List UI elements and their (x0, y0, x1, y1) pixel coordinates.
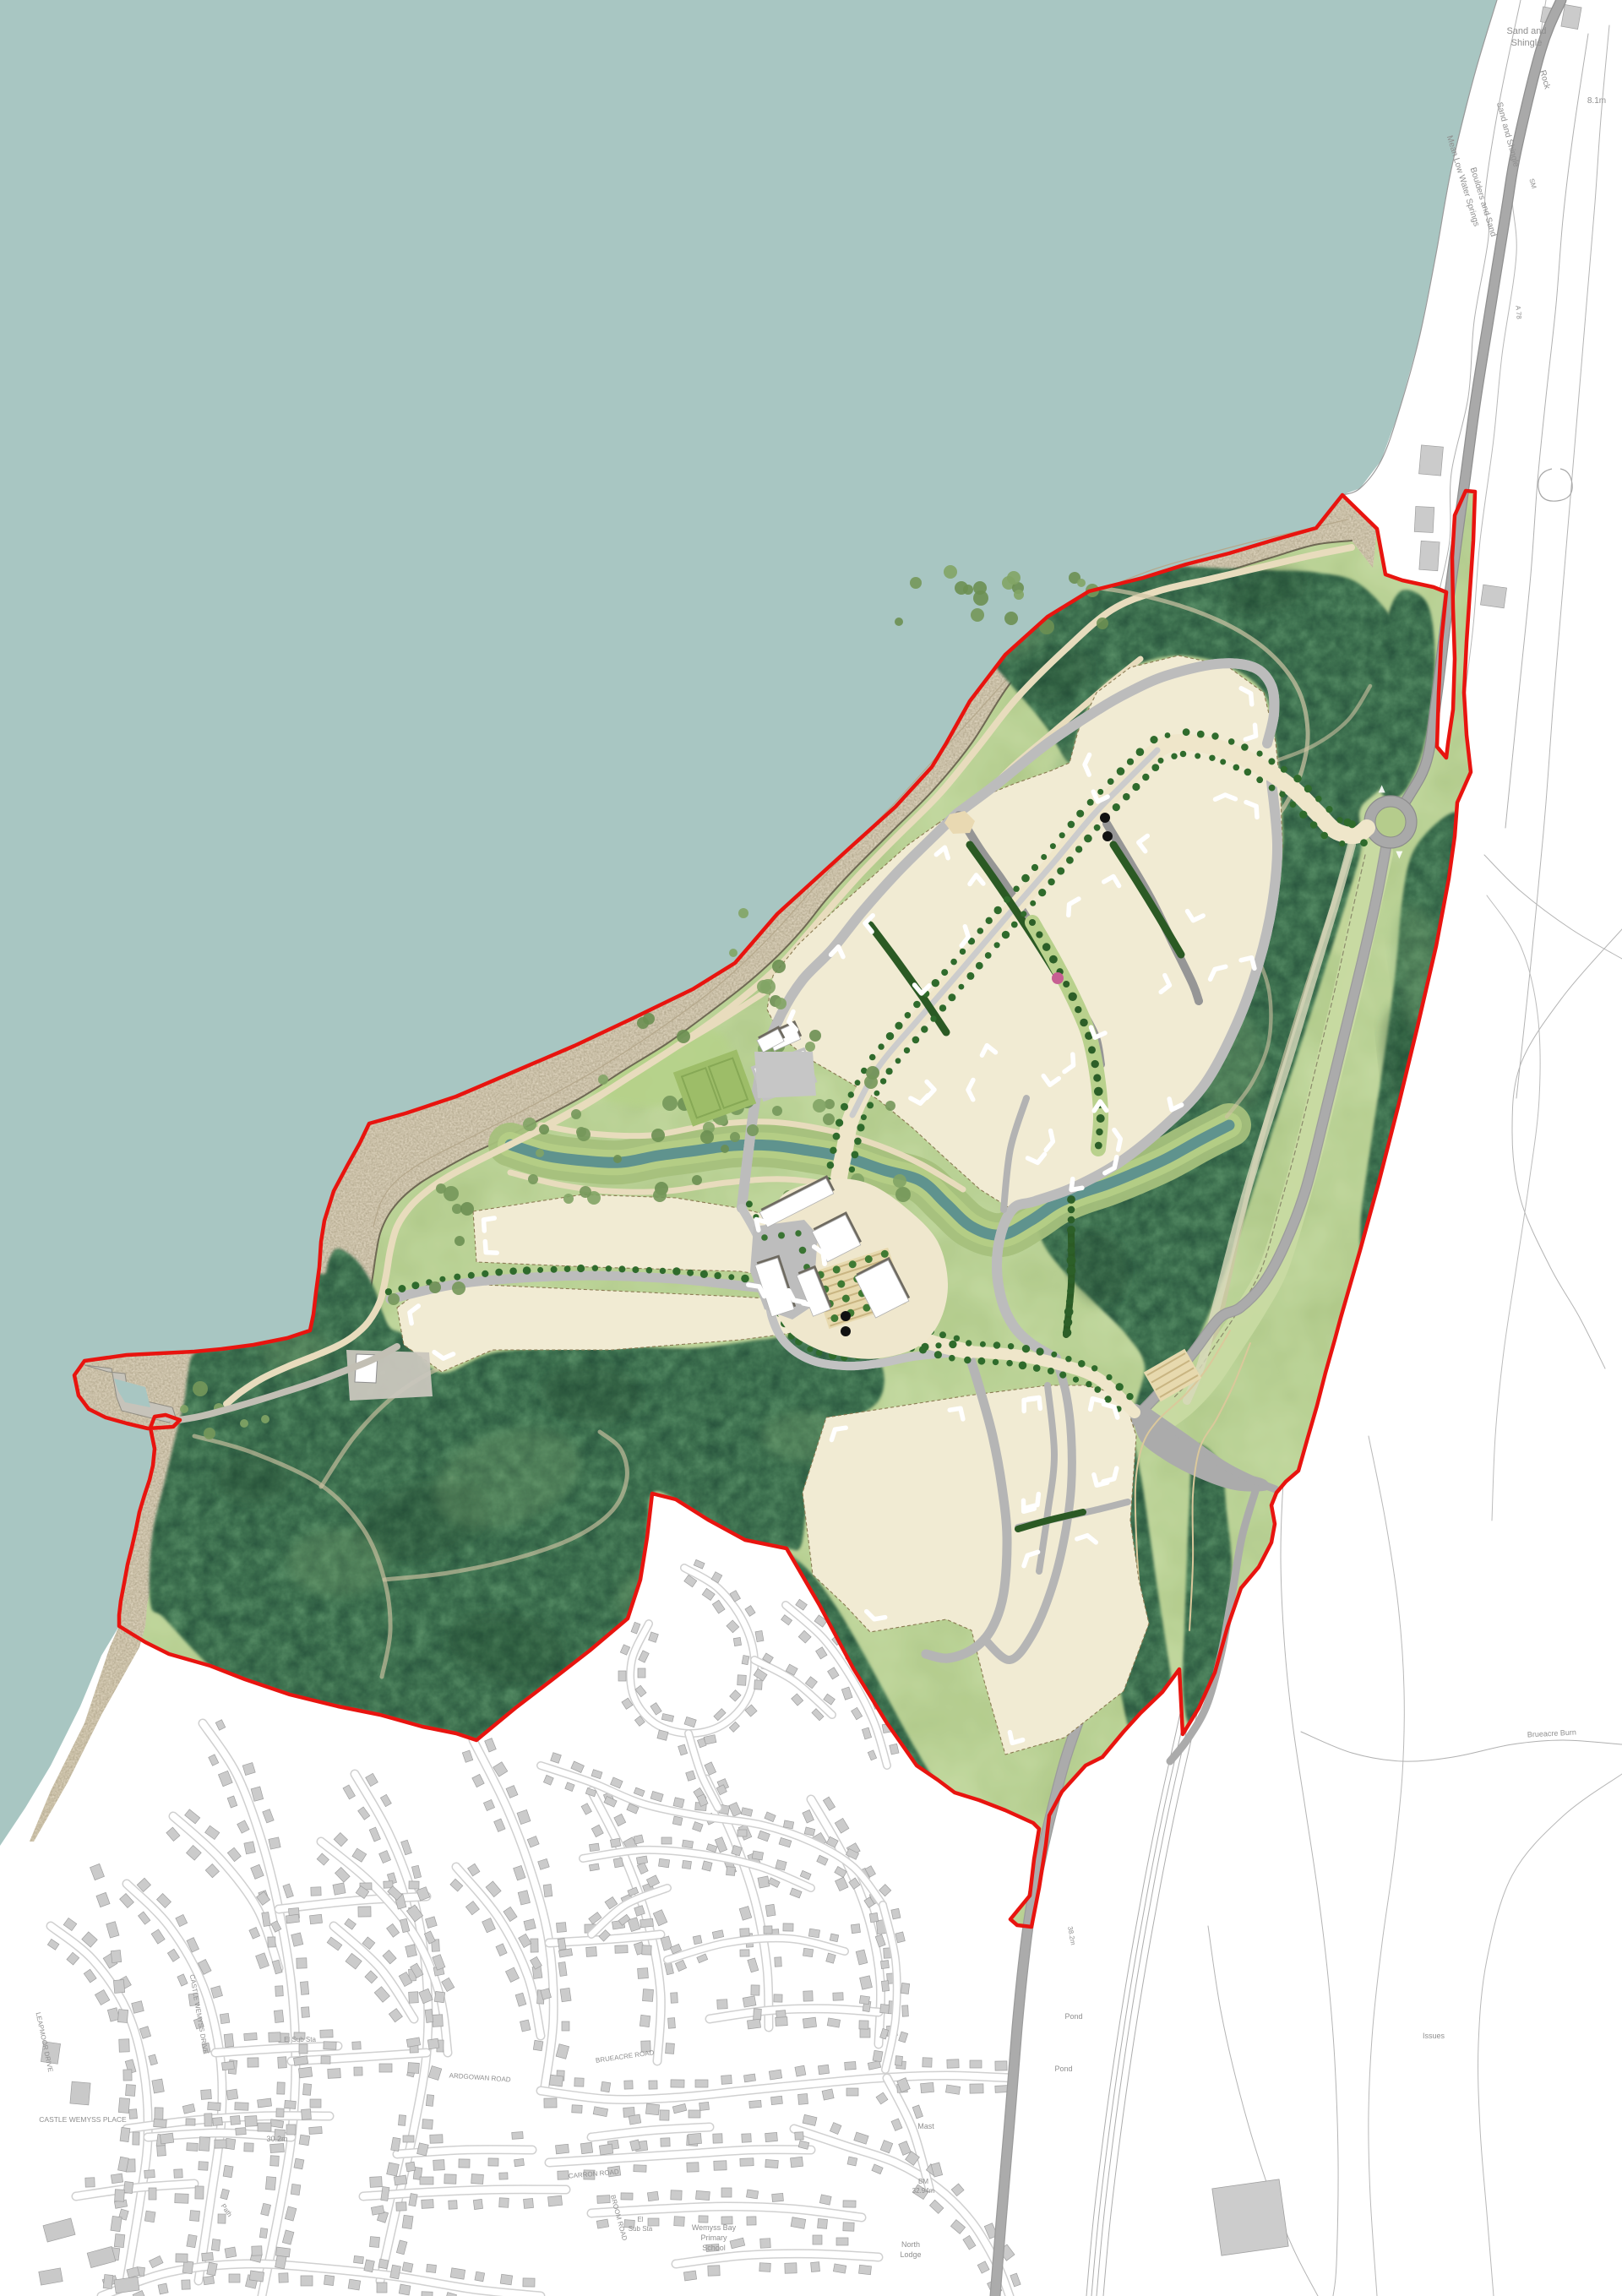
svg-text:A 78: A 78 (1514, 305, 1522, 319)
svg-text:Pond: Pond (1064, 2012, 1082, 2021)
svg-text:Shingle: Shingle (1511, 38, 1543, 48)
svg-text:School: School (702, 2244, 726, 2252)
svg-text:Wemyss Bay: Wemyss Bay (692, 2223, 737, 2232)
svg-text:Sub Sta: Sub Sta (629, 2225, 653, 2233)
svg-text:32.94m: 32.94m (912, 2187, 935, 2195)
svg-text:El: El (637, 2216, 643, 2223)
svg-text:Lodge: Lodge (900, 2250, 921, 2259)
svg-text:30.2m: 30.2m (266, 2135, 287, 2143)
svg-text:BM: BM (918, 2178, 928, 2185)
svg-text:North: North (901, 2240, 920, 2249)
svg-text:Sand and: Sand and (1506, 26, 1546, 36)
svg-text:Primary: Primary (701, 2233, 727, 2242)
svg-text:CASTLE WEMYSS PLACE: CASTLE WEMYSS PLACE (39, 2115, 127, 2124)
svg-text:8.1m: 8.1m (1587, 96, 1606, 106)
svg-text:Mast: Mast (917, 2122, 934, 2130)
svg-text:El Sub Sta: El Sub Sta (284, 2036, 316, 2043)
svg-text:Issues: Issues (1423, 2032, 1445, 2040)
svg-text:Pond: Pond (1054, 2065, 1072, 2073)
